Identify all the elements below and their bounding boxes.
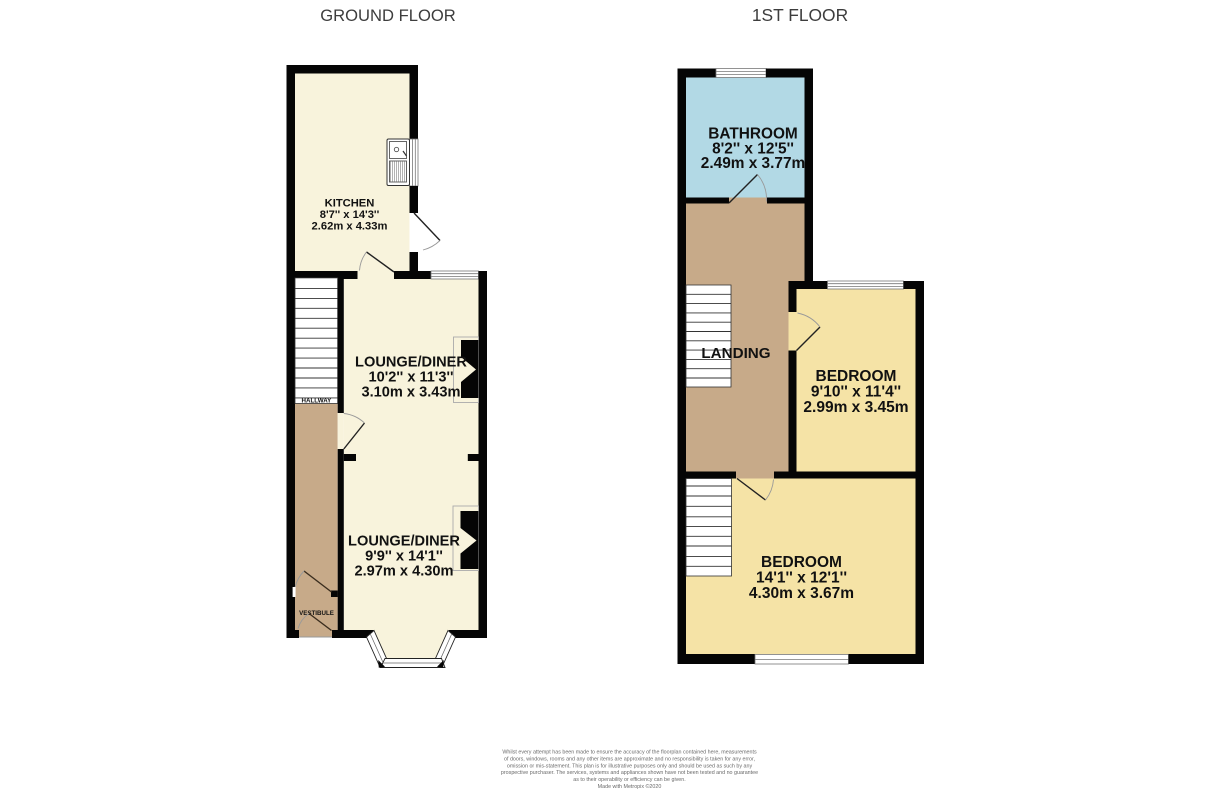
svg-text:8'7'' x 14'3'': 8'7'' x 14'3''	[320, 209, 380, 221]
svg-text:omission or mis-statement. Thi: omission or mis-statement. This plan is …	[507, 763, 753, 769]
svg-text:LOUNGE/DINER: LOUNGE/DINER	[348, 533, 460, 549]
svg-text:14'1'' x 12'1'': 14'1'' x 12'1''	[756, 569, 847, 586]
svg-text:2.62m x 4.33m: 2.62m x 4.33m	[312, 221, 388, 233]
svg-text:BEDROOM: BEDROOM	[761, 554, 842, 571]
svg-text:2.99m x 3.45m: 2.99m x 3.45m	[803, 399, 908, 416]
svg-text:KITCHEN: KITCHEN	[325, 197, 375, 209]
svg-text:VESTIBULE: VESTIBULE	[299, 610, 334, 617]
svg-text:BEDROOM: BEDROOM	[816, 368, 897, 385]
svg-text:Whilst every attempt has been: Whilst every attempt has been made to en…	[502, 750, 757, 756]
svg-text:10'2'' x 11'3'': 10'2'' x 11'3''	[369, 369, 454, 385]
svg-text:HALLWAY: HALLWAY	[302, 397, 333, 404]
svg-text:2.97m x 4.30m: 2.97m x 4.30m	[355, 563, 454, 579]
svg-text:LOUNGE/DINER: LOUNGE/DINER	[355, 354, 467, 370]
svg-text:1ST FLOOR: 1ST FLOOR	[752, 5, 848, 25]
svg-text:2.49m x 3.77m: 2.49m x 3.77m	[701, 155, 805, 172]
svg-text:GROUND FLOOR: GROUND FLOOR	[320, 6, 456, 25]
svg-text:LANDING: LANDING	[701, 345, 770, 362]
svg-text:9'10'' x 11'4'': 9'10'' x 11'4''	[811, 384, 901, 401]
svg-text:as to their operability or eff: as to their operability or efficiency ca…	[573, 777, 685, 783]
svg-text:prospective purchaser. The ser: prospective purchaser. The services, sys…	[501, 770, 758, 776]
svg-text:3.10m x 3.43m: 3.10m x 3.43m	[362, 384, 461, 400]
svg-text:9'9'' x 14'1'': 9'9'' x 14'1''	[365, 548, 443, 564]
svg-text:of doors, windows, rooms and a: of doors, windows, rooms and any other i…	[504, 756, 755, 762]
svg-text:Made with Metropix ©2020: Made with Metropix ©2020	[598, 783, 662, 790]
svg-text:4.30m x 3.67m: 4.30m x 3.67m	[749, 585, 854, 602]
